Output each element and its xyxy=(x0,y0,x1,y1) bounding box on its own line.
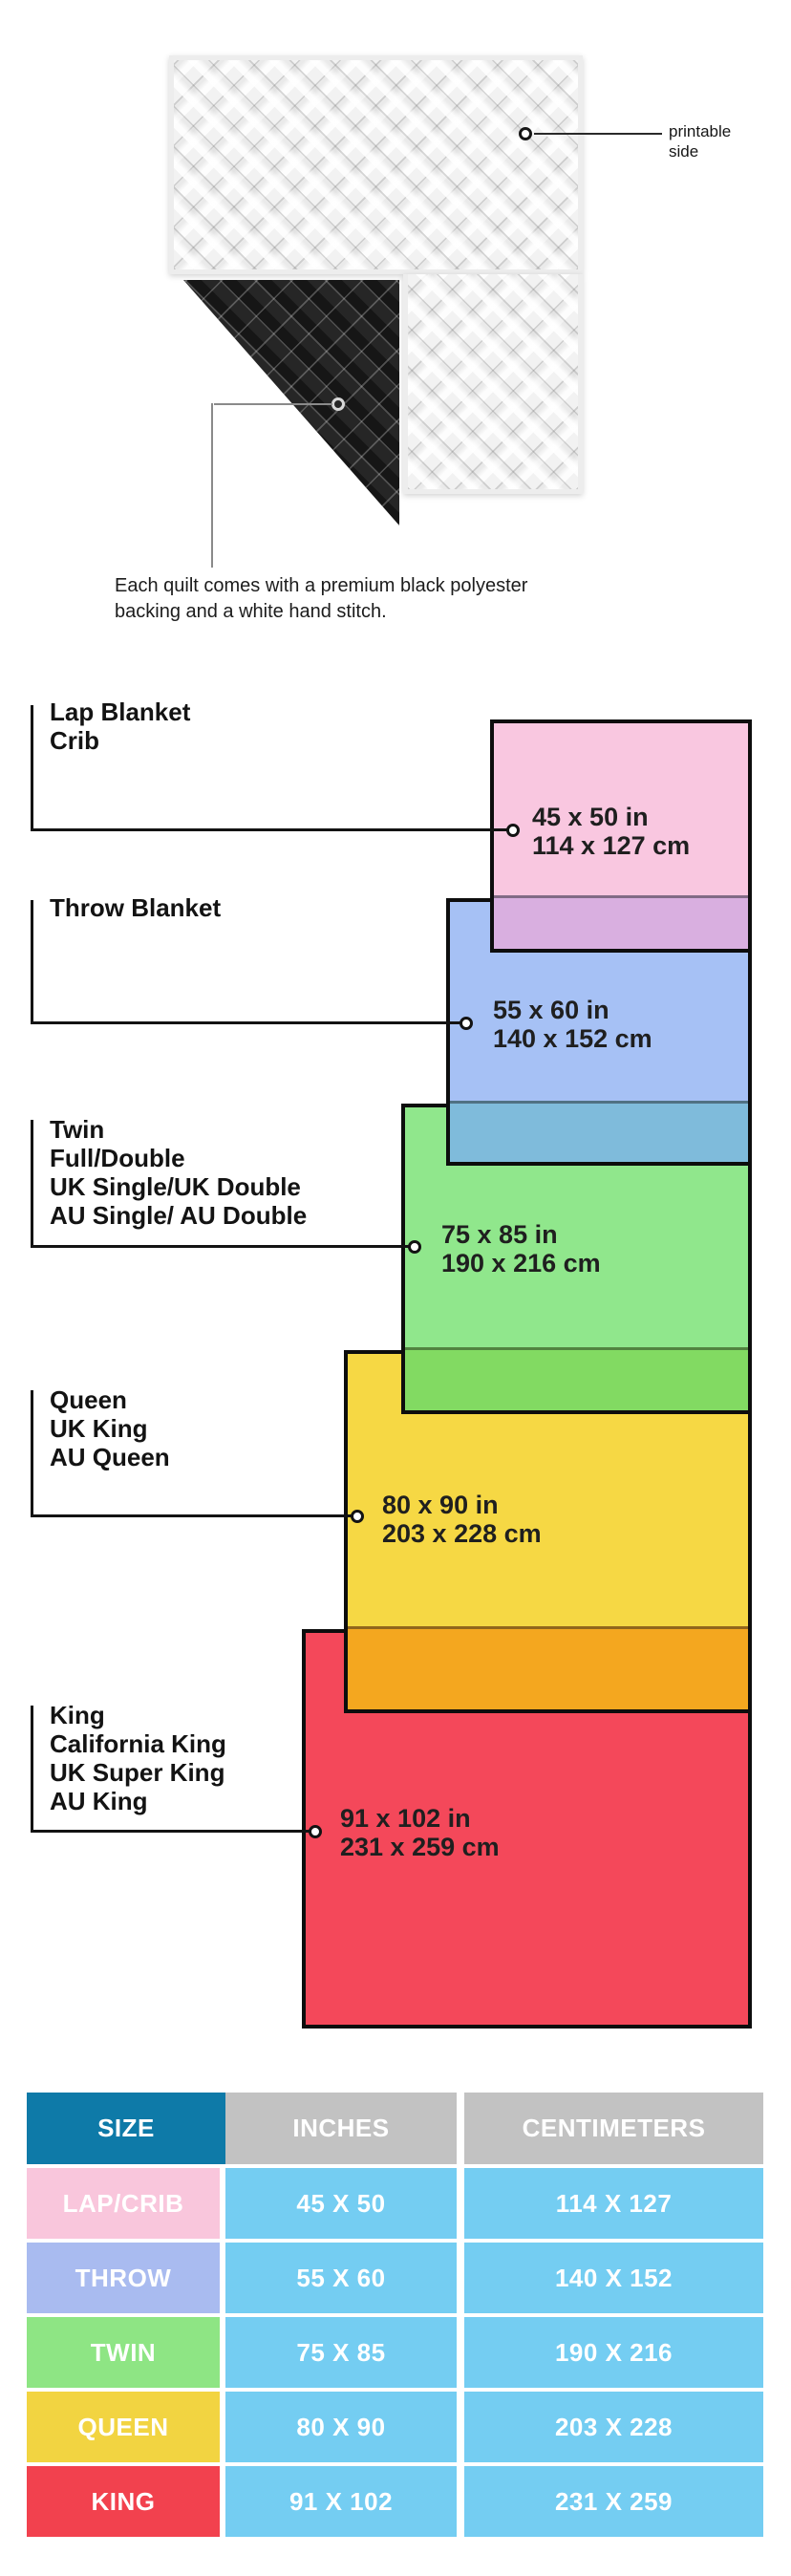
printable-side-label-line2: side xyxy=(669,141,731,161)
label-twin-line1: Twin xyxy=(50,1115,307,1144)
label-block-twin: Twin Full/Double UK Single/UK Double AU … xyxy=(50,1115,307,1230)
row-twin-inches: 75 X 85 xyxy=(225,2317,457,2388)
dims-king: 91 x 102 in 231 x 259 cm xyxy=(340,1804,500,1861)
quilt-top-surface xyxy=(169,55,583,274)
dims-twin: 75 x 85 in 190 x 216 cm xyxy=(441,1220,601,1277)
label-twin-line2: Full/Double xyxy=(50,1144,307,1172)
table-row-lap: LAP/CRIB 45 X 50 114 X 127 xyxy=(27,2168,763,2239)
label-lap-line1: Lap Blanket xyxy=(50,698,190,726)
table-row-king: KING 91 X 102 231 X 259 xyxy=(27,2466,763,2537)
leader-throw-dot xyxy=(460,1017,473,1030)
leader-lap-vertical xyxy=(31,705,33,830)
leader-twin-horizontal xyxy=(31,1245,409,1248)
label-king-line1: King xyxy=(50,1701,226,1729)
backing-leader-line-horizontal xyxy=(214,403,332,405)
leader-lap-dot xyxy=(506,824,520,837)
row-queen-cm: 203 X 228 xyxy=(464,2392,763,2462)
label-throw-line1: Throw Blanket xyxy=(50,893,221,922)
dims-throw-cm: 140 x 152 cm xyxy=(493,1024,652,1053)
row-throw-size: THROW xyxy=(27,2243,220,2313)
row-lap-inches: 45 X 50 xyxy=(225,2168,457,2239)
dims-twin-cm: 190 x 216 cm xyxy=(441,1249,601,1277)
leader-queen-vertical xyxy=(31,1390,33,1517)
row-king-size: KING xyxy=(27,2466,220,2537)
label-block-queen: Queen UK King AU Queen xyxy=(50,1385,170,1471)
label-queen-line3: AU Queen xyxy=(50,1443,170,1471)
printable-side-marker-dot xyxy=(519,127,532,140)
size-table: SIZE INCHES CENTIMETERS LAP/CRIB 45 X 50… xyxy=(27,2093,763,2541)
row-king-cm: 231 X 259 xyxy=(464,2466,763,2537)
leader-king-vertical xyxy=(31,1706,33,1833)
dims-throw-inches: 55 x 60 in xyxy=(493,996,652,1024)
label-king-line3: UK Super King xyxy=(50,1758,226,1787)
row-lap-size: LAP/CRIB xyxy=(27,2168,220,2239)
header-cell-inches: INCHES xyxy=(225,2093,457,2164)
leader-throw-vertical xyxy=(31,900,33,1024)
leader-king-dot xyxy=(309,1825,322,1838)
row-lap-cm: 114 X 127 xyxy=(464,2168,763,2239)
quilt-top-surface-right xyxy=(403,274,583,494)
leader-twin-vertical xyxy=(31,1120,33,1248)
quilt-size-infographic: printable side Each quilt comes with a p… xyxy=(0,0,791,2576)
dims-lap: 45 x 50 in 114 x 127 cm xyxy=(532,803,690,860)
label-block-king: King California King UK Super King AU Ki… xyxy=(50,1701,226,1815)
dims-throw: 55 x 60 in 140 x 152 cm xyxy=(493,996,652,1053)
leader-king-horizontal xyxy=(31,1830,310,1833)
label-twin-line3: UK Single/UK Double xyxy=(50,1172,307,1201)
header-cell-centimeters: CENTIMETERS xyxy=(464,2093,763,2164)
label-queen-line2: UK King xyxy=(50,1414,170,1443)
printable-side-label-line1: printable xyxy=(669,121,731,141)
label-block-throw: Throw Blanket xyxy=(50,893,221,922)
leader-twin-dot xyxy=(408,1240,421,1254)
backing-leader-line-vertical xyxy=(211,403,213,568)
label-twin-line4: AU Single/ AU Double xyxy=(50,1201,307,1230)
row-twin-cm: 190 X 216 xyxy=(464,2317,763,2388)
label-king-line2: California King xyxy=(50,1729,226,1758)
row-queen-inches: 80 X 90 xyxy=(225,2392,457,2462)
row-king-inches: 91 X 102 xyxy=(225,2466,457,2537)
dims-lap-cm: 114 x 127 cm xyxy=(532,831,690,860)
leader-throw-horizontal xyxy=(31,1021,460,1024)
header-cell-size: SIZE xyxy=(27,2093,225,2164)
dims-queen-cm: 203 x 228 cm xyxy=(382,1519,542,1548)
dims-king-inches: 91 x 102 in xyxy=(340,1804,500,1833)
overlap-lap-over-throw xyxy=(494,895,748,949)
table-row-queen: QUEEN 80 X 90 203 X 228 xyxy=(27,2392,763,2462)
printable-side-leader-line xyxy=(534,133,662,135)
dims-queen: 80 x 90 in 203 x 228 cm xyxy=(382,1491,542,1548)
label-king-line4: AU King xyxy=(50,1787,226,1815)
label-queen-line1: Queen xyxy=(50,1385,170,1414)
quilt-caption-line1: Each quilt comes with a premium black po… xyxy=(115,573,527,599)
row-throw-inches: 55 X 60 xyxy=(225,2243,457,2313)
row-twin-size: TWIN xyxy=(27,2317,220,2388)
overlap-twin-over-queen xyxy=(405,1347,748,1410)
backing-marker-dot xyxy=(331,397,345,411)
overlap-throw-over-twin xyxy=(450,1101,748,1162)
dims-twin-inches: 75 x 85 in xyxy=(441,1220,601,1249)
quilt-caption-line2: backing and a white hand stitch. xyxy=(115,599,527,625)
leader-queen-horizontal xyxy=(31,1514,352,1517)
row-throw-cm: 140 X 152 xyxy=(464,2243,763,2313)
label-lap-line2: Crib xyxy=(50,726,190,755)
table-row-twin: TWIN 75 X 85 190 X 216 xyxy=(27,2317,763,2388)
table-row-throw: THROW 55 X 60 140 X 152 xyxy=(27,2243,763,2313)
leader-queen-dot xyxy=(351,1510,364,1523)
quilt-caption: Each quilt comes with a premium black po… xyxy=(115,573,527,625)
table-header-row: SIZE INCHES CENTIMETERS xyxy=(27,2093,763,2164)
label-block-lap: Lap Blanket Crib xyxy=(50,698,190,755)
overlap-queen-over-king xyxy=(348,1626,748,1709)
dims-queen-inches: 80 x 90 in xyxy=(382,1491,542,1519)
dims-lap-inches: 45 x 50 in xyxy=(532,803,690,831)
printable-side-label: printable side xyxy=(669,121,731,161)
leader-lap-horizontal xyxy=(31,828,507,831)
row-queen-size: QUEEN xyxy=(27,2392,220,2462)
dims-king-cm: 231 x 259 cm xyxy=(340,1833,500,1861)
